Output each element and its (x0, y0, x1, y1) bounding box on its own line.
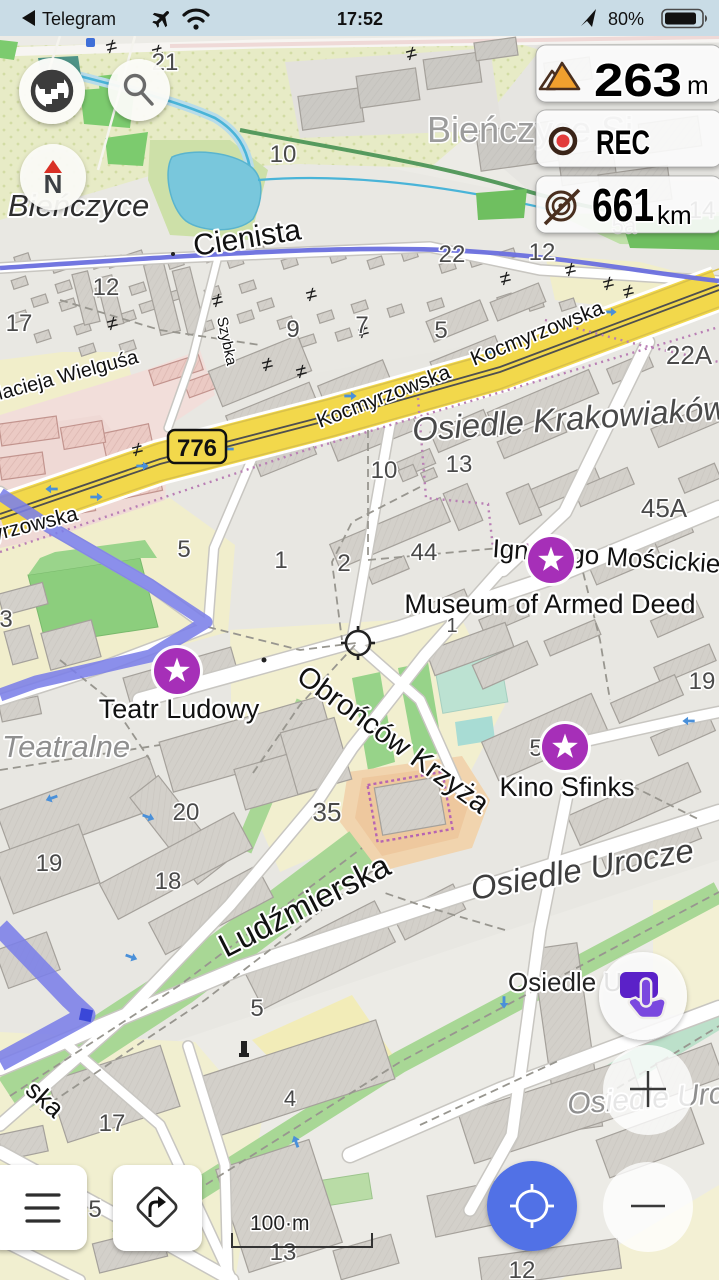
svg-text:20: 20 (173, 799, 200, 826)
svg-text:35: 35 (313, 797, 342, 827)
svg-text:13: 13 (446, 451, 473, 478)
svg-text:22: 22 (439, 241, 466, 268)
svg-text:5: 5 (250, 995, 263, 1022)
svg-text:22A: 22A (666, 340, 713, 370)
svg-text:4: 4 (284, 1086, 296, 1111)
svg-text:18: 18 (155, 868, 182, 895)
svg-text:19: 19 (36, 850, 63, 877)
svg-text:661: 661 (592, 179, 654, 231)
svg-text:5: 5 (88, 1196, 101, 1223)
svg-text:17:52: 17:52 (337, 9, 383, 29)
svg-text:m: m (687, 70, 709, 100)
svg-text:Kino Sfinks: Kino Sfinks (499, 772, 634, 802)
svg-text:Museum of Armed Deed: Museum of Armed Deed (404, 589, 695, 619)
svg-text:13: 13 (270, 1239, 297, 1266)
svg-text:80%: 80% (608, 9, 644, 29)
svg-text:776: 776 (177, 435, 217, 462)
svg-text:Teatr Ludowy: Teatr Ludowy (99, 694, 260, 724)
svg-text:REC: REC (596, 124, 650, 162)
svg-text:N: N (44, 169, 63, 199)
svg-text:100·m: 100·m (250, 1212, 310, 1235)
svg-text:5: 5 (434, 317, 447, 344)
svg-text:9: 9 (286, 316, 299, 343)
svg-text:12: 12 (509, 1257, 536, 1280)
svg-text:7: 7 (355, 312, 368, 339)
svg-text:17: 17 (6, 310, 33, 337)
svg-text:km: km (657, 200, 692, 230)
svg-text:44: 44 (411, 539, 438, 566)
svg-text:17: 17 (99, 1110, 126, 1137)
svg-text:19: 19 (689, 668, 716, 695)
svg-text:1: 1 (274, 547, 287, 574)
svg-text:Teatralne: Teatralne (2, 729, 130, 764)
svg-text:10: 10 (270, 141, 297, 168)
svg-text:Telegram: Telegram (42, 9, 116, 29)
svg-text:5: 5 (177, 536, 190, 563)
svg-text:12: 12 (93, 274, 120, 301)
svg-text:3: 3 (0, 606, 13, 633)
svg-text:10: 10 (371, 457, 398, 484)
svg-text:263: 263 (594, 54, 682, 106)
svg-text:2: 2 (337, 550, 350, 577)
svg-text:12: 12 (529, 239, 556, 266)
svg-text:45A: 45A (641, 493, 688, 523)
